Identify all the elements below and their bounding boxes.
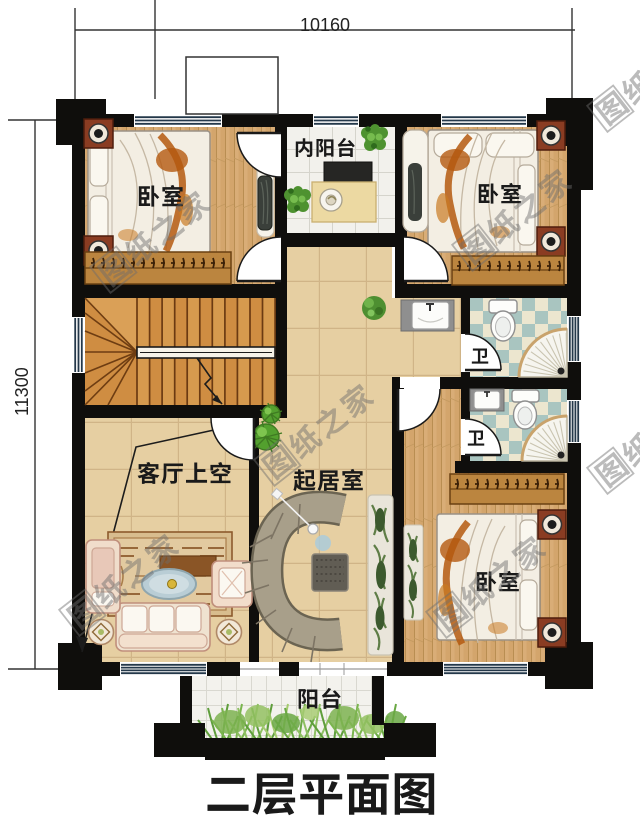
svg-text:10160: 10160 — [300, 15, 350, 35]
svg-text:11300: 11300 — [12, 367, 32, 416]
